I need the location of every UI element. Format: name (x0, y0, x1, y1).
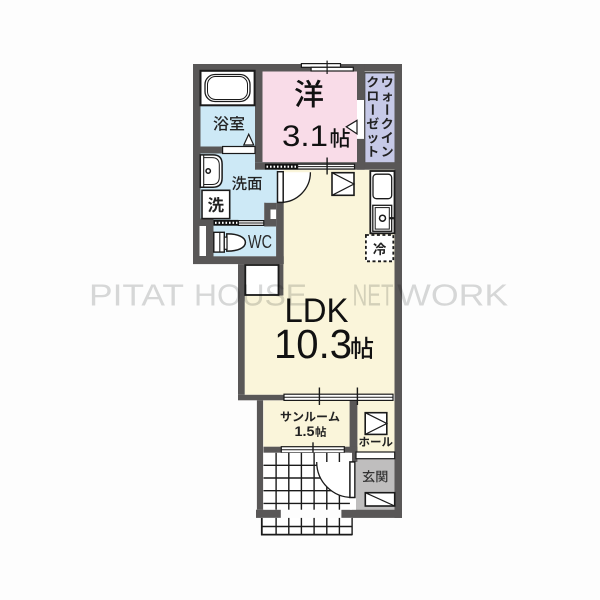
svg-text:WC: WC (248, 232, 272, 252)
svg-text:1.5: 1.5 (295, 424, 316, 439)
svg-text:3.1: 3.1 (282, 120, 328, 153)
svg-text:WORK: WORK (397, 278, 508, 313)
svg-text:HOUSE: HOUSE (194, 278, 307, 313)
svg-text:PITAT: PITAT (89, 278, 184, 313)
svg-text:NET: NET (353, 278, 394, 313)
svg-text:10.3: 10.3 (274, 321, 352, 367)
